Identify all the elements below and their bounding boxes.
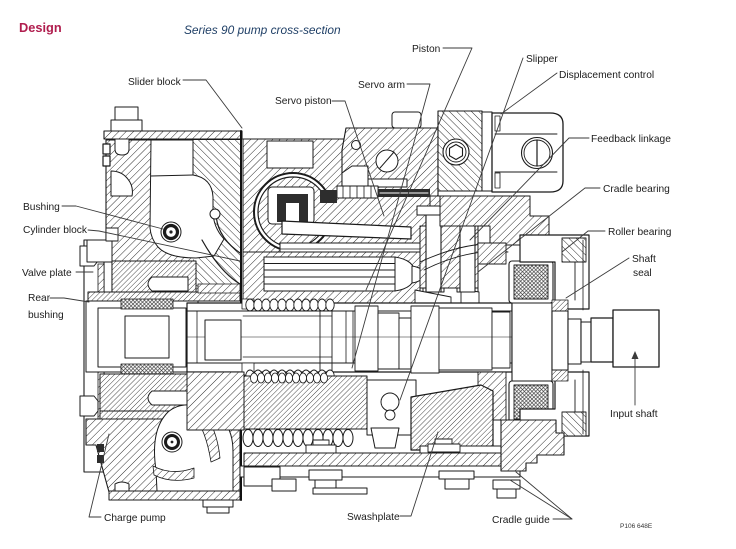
svg-text:seal: seal [633,268,652,279]
svg-text:Servo piston: Servo piston [275,96,332,107]
svg-text:Rear: Rear [28,293,51,304]
svg-text:Slider block: Slider block [128,77,182,88]
svg-text:P106 648E: P106 648E [620,523,653,530]
svg-text:Cradle guide: Cradle guide [492,515,550,526]
svg-text:Slipper: Slipper [526,54,558,65]
svg-text:Charge pump: Charge pump [104,513,166,524]
svg-text:Feedback linkage: Feedback linkage [591,134,671,145]
svg-text:Bushing: Bushing [23,202,60,213]
svg-text:bushing: bushing [28,310,64,321]
svg-text:Cylinder block: Cylinder block [23,225,88,236]
svg-text:Roller bearing: Roller bearing [608,227,672,238]
svg-text:Servo arm: Servo arm [358,80,405,91]
svg-text:Cradle bearing: Cradle bearing [603,184,670,195]
svg-text:Displacement control: Displacement control [559,70,654,81]
svg-text:Piston: Piston [412,44,440,55]
svg-text:Shaft: Shaft [632,254,656,265]
svg-text:Valve plate: Valve plate [22,268,72,279]
svg-text:Input shaft: Input shaft [610,409,658,420]
svg-text:Design: Design [19,20,62,35]
svg-text:Swashplate: Swashplate [347,512,400,523]
svg-text:Series 90 pump cross-section: Series 90 pump cross-section [184,23,341,37]
